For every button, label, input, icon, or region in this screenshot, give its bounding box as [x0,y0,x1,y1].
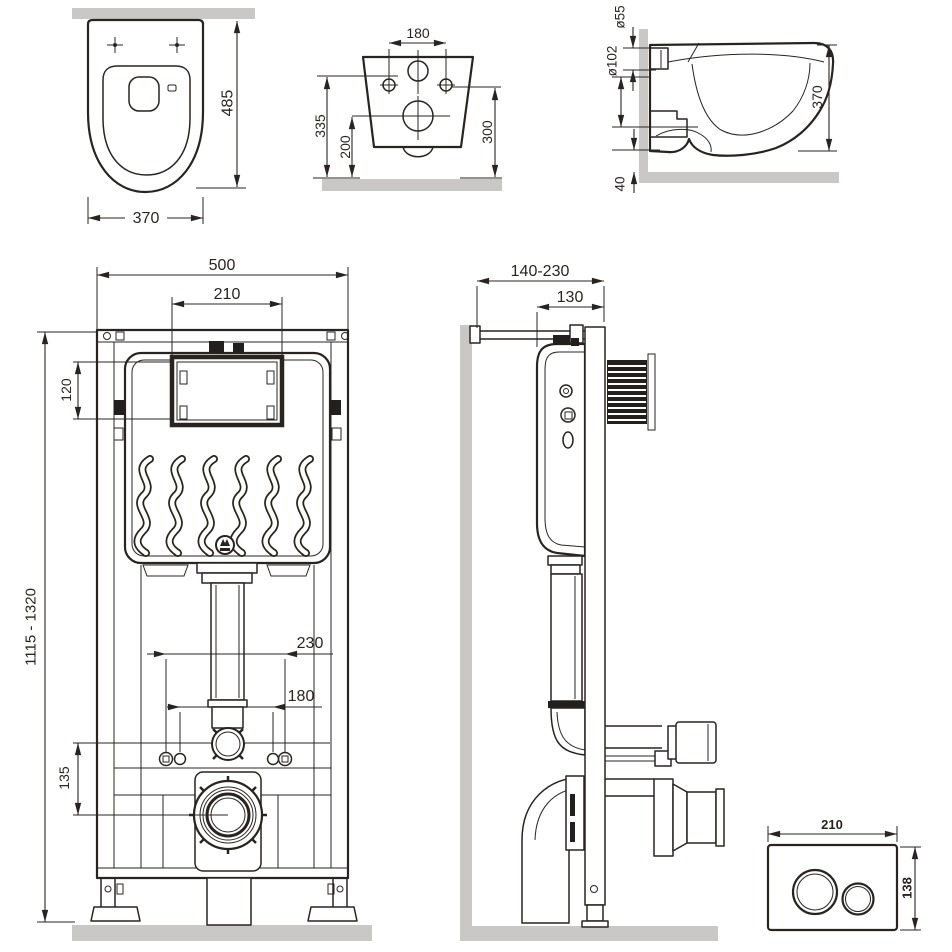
dim-label-bottom-gap: 40 [613,176,628,191]
dim-label-frame-width: 500 [209,257,236,274]
dim-label-stud-outer: 230 [297,635,324,652]
dim-plate-width: 210 [768,817,897,842]
dim-label-side-height: 370 [809,85,825,109]
frame-side-view: 140-230 130 [460,263,724,941]
seat-cutout [129,77,159,111]
inspection-window [172,357,282,425]
dim-plate-height: 138 [900,847,922,930]
wall-anchor-plate [607,354,655,430]
supply-connection [605,722,716,766]
dim-label-plate-height: 138 [900,877,915,899]
drain-socket-side [654,779,724,856]
dim-label-window-height: 120 [58,378,74,402]
flush-pipe-side [548,556,585,755]
dim-label-drain-offset: 135 [56,766,72,790]
dim-label-plate-width: 210 [821,817,843,832]
dim-label-hole-spacing: 180 [406,25,430,41]
dim-label-inlet-diameter: ø55 [613,5,628,28]
dim-label-inlet-height: 335 [312,114,328,138]
wall-bar-frame-side [460,325,472,926]
installation-drawing: 485 370 180 [0,0,952,952]
dim-label-window-width: 210 [214,286,241,303]
seat-hinge-detail [168,85,176,91]
frame-front-view: 500 210 120 1115 - 1320 230 [23,257,373,941]
dim-label-depth-range: 140-230 [511,263,570,280]
upright-foot [582,905,608,927]
foot-plate-left [91,907,140,921]
bowl-outline [88,20,203,192]
floor-bar-side [639,172,839,183]
dim-outlet-diameter: ø102 [605,46,699,127]
bowl-top-view: 485 370 [72,8,255,227]
cistern-logo-badge [216,536,234,554]
bowl-rear-view: 180 335 200 300 [312,25,502,191]
seat-outline [103,66,190,175]
dim-label-fixing-height: 300 [479,120,495,144]
dim-label-frame-height-range: 1115 - 1320 [23,588,40,666]
dim-label-outlet-height: 200 [337,135,353,159]
frame-legs [91,878,357,925]
floor-bar-frame [72,925,372,941]
technical-drawing-canvas: 485 370 180 [0,0,952,952]
flush-pipe-connector [212,728,244,760]
dim-bottom-gap: 40 [612,129,660,193]
bowl-rear-bottom-lug [403,147,433,157]
dim-depth-range: 140-230 [477,263,604,328]
dim-fixing-height: 300 [451,87,502,178]
floor-bar-frame-side [460,926,718,941]
dim-label-bowl-height: 485 [220,90,237,117]
dim-label-stud-inner: 180 [288,688,315,705]
foot-plate-right [308,907,357,921]
dim-frame-height-range: 1115 - 1320 [23,332,98,922]
dim-outlet-height: 200 [337,117,353,177]
dim-inlet-height: 335 [312,76,398,178]
dim-label-outlet-diameter: ø102 [605,46,620,77]
dim-label-frame-depth: 130 [557,289,584,306]
dim-label-bowl-width: 370 [133,210,160,227]
frame-upright [585,327,605,905]
wall-section-bar [72,8,255,19]
wall-bar-side [639,29,648,183]
outlet-horn [650,111,687,137]
flush-plate-view: 210 138 [768,817,921,930]
drain-stub [207,878,251,925]
cistern-side-profile [537,344,585,556]
floor-bar [322,179,502,191]
inlet-spigot [650,48,668,69]
mounting-cross-marks [107,37,185,53]
dim-bowl-width: 370 [88,197,203,227]
bowl-side-view: ø55 ø102 40 370 [605,5,840,193]
